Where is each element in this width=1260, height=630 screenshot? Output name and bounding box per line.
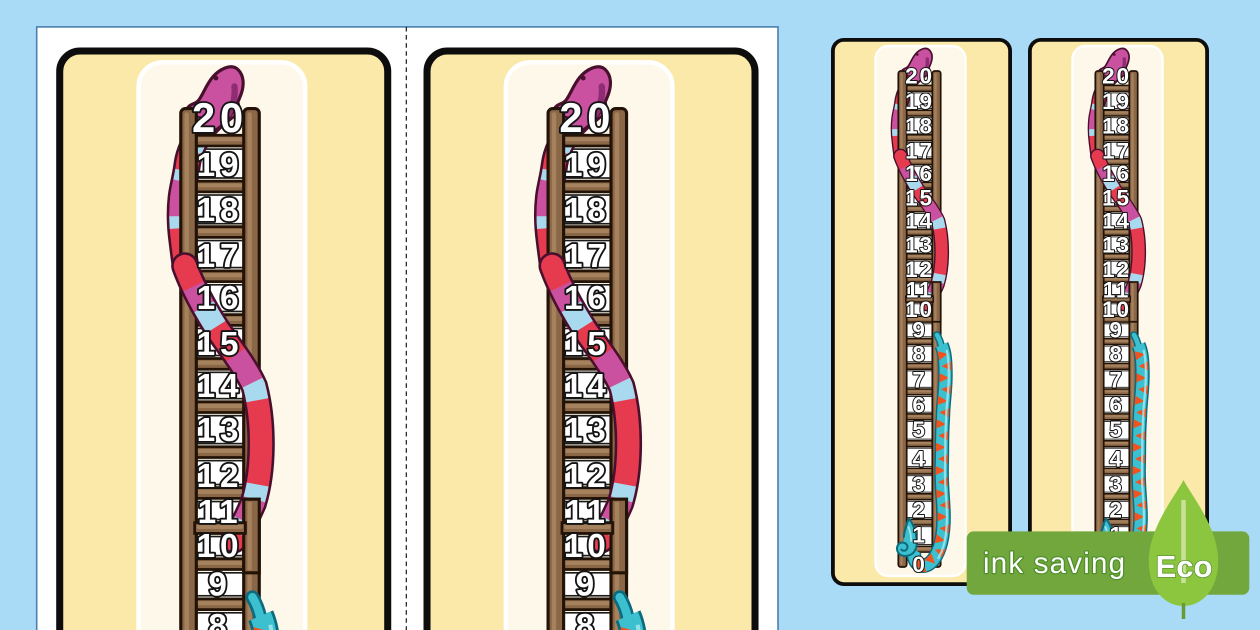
svg-text:2: 2 [1109, 498, 1123, 523]
svg-text:16: 16 [564, 280, 611, 317]
svg-text:ink saving: ink saving [983, 547, 1126, 580]
svg-text:19: 19 [197, 147, 244, 184]
svg-text:17: 17 [1102, 138, 1131, 163]
svg-text:15: 15 [905, 186, 934, 211]
svg-text:16: 16 [905, 161, 934, 186]
svg-text:16: 16 [1102, 161, 1131, 186]
svg-text:18: 18 [905, 113, 934, 138]
svg-text:6: 6 [1109, 393, 1123, 418]
svg-text:16: 16 [197, 280, 244, 317]
svg-text:17: 17 [905, 138, 934, 163]
svg-text:8: 8 [912, 341, 926, 366]
svg-text:20: 20 [559, 94, 615, 141]
svg-text:18: 18 [197, 192, 244, 229]
svg-text:12: 12 [564, 458, 611, 495]
svg-text:8: 8 [1109, 341, 1123, 366]
svg-text:1: 1 [912, 523, 926, 548]
svg-text:9: 9 [208, 566, 231, 603]
svg-text:13: 13 [197, 412, 244, 449]
svg-text:11: 11 [198, 494, 243, 531]
svg-text:0: 0 [912, 552, 926, 577]
svg-text:15: 15 [564, 326, 611, 363]
svg-text:7: 7 [1109, 367, 1123, 392]
svg-text:11: 11 [565, 494, 610, 531]
svg-text:20: 20 [192, 94, 248, 141]
svg-text:13: 13 [905, 232, 934, 257]
svg-text:12: 12 [905, 257, 934, 282]
svg-text:18: 18 [564, 192, 611, 229]
svg-text:12: 12 [1102, 257, 1131, 282]
svg-text:12: 12 [197, 458, 244, 495]
svg-text:19: 19 [905, 89, 934, 114]
svg-text:Eco: Eco [1156, 549, 1213, 584]
svg-text:15: 15 [1102, 186, 1131, 211]
svg-text:2: 2 [912, 498, 926, 523]
svg-text:10: 10 [564, 528, 611, 565]
svg-text:14: 14 [1102, 209, 1131, 234]
svg-text:9: 9 [576, 566, 599, 603]
svg-text:19: 19 [564, 147, 611, 184]
svg-text:8: 8 [208, 608, 231, 630]
svg-text:5: 5 [1109, 417, 1123, 442]
svg-text:4: 4 [912, 446, 926, 471]
svg-text:6: 6 [912, 393, 926, 418]
svg-text:14: 14 [197, 368, 244, 405]
svg-text:14: 14 [905, 209, 934, 234]
svg-text:13: 13 [564, 412, 611, 449]
svg-text:5: 5 [912, 417, 926, 442]
svg-text:18: 18 [1102, 113, 1131, 138]
svg-text:15: 15 [197, 326, 244, 363]
svg-text:14: 14 [564, 368, 611, 405]
svg-text:17: 17 [197, 238, 244, 275]
svg-text:4: 4 [1109, 446, 1123, 471]
svg-text:17: 17 [564, 238, 611, 275]
svg-text:20: 20 [905, 64, 934, 89]
svg-text:8: 8 [576, 608, 599, 630]
svg-text:13: 13 [1102, 232, 1131, 257]
svg-text:10: 10 [197, 528, 244, 565]
svg-text:19: 19 [1102, 89, 1131, 114]
svg-text:7: 7 [912, 367, 926, 392]
svg-text:3: 3 [1109, 472, 1123, 497]
svg-text:3: 3 [912, 472, 926, 497]
svg-text:20: 20 [1102, 64, 1131, 89]
